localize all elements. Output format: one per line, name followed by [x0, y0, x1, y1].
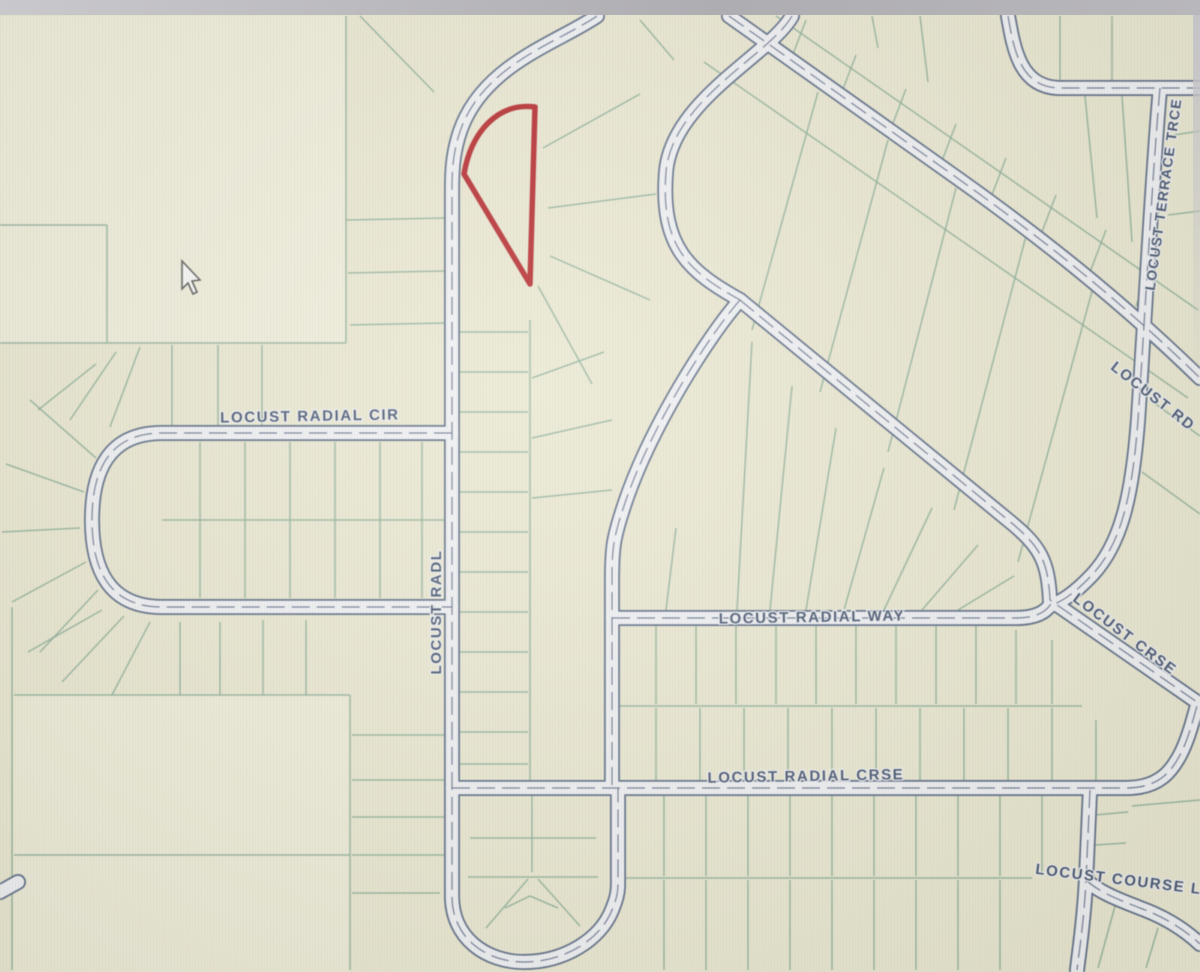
window-top-edge: [0, 0, 1200, 15]
street-label-locust-radial-cir: LOCUST RADIAL CIR: [220, 406, 400, 426]
map-canvas[interactable]: LOCUST RADIAL CIR LOCUST RADL LOCUST RAD…: [0, 0, 1200, 972]
street-label-locust-radial-way: LOCUST RADIAL WAY: [719, 607, 906, 627]
unplatted-block-highlight: [14, 695, 350, 972]
screen-right-edge: [1193, 15, 1200, 385]
map-screenshot: LOCUST RADIAL CIR LOCUST RADL LOCUST RAD…: [0, 0, 1200, 972]
street-label-locust-radial-crse: LOCUST RADIAL CRSE: [707, 766, 904, 786]
street-label-locust-radl: LOCUST RADL: [428, 549, 445, 674]
unplatted-block-highlight: [0, 16, 345, 343]
